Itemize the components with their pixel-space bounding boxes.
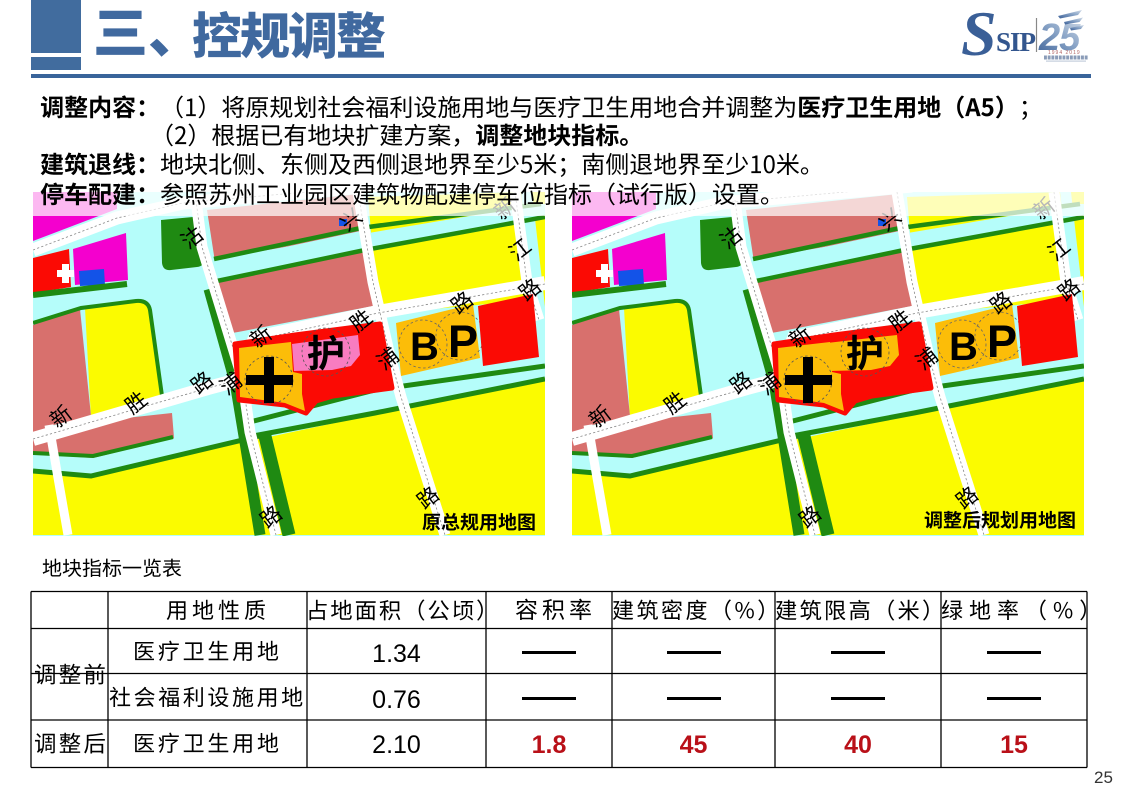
svg-text:P: P [448,316,478,367]
svg-text:B: B [410,325,439,369]
svg-text:SIP: SIP [996,27,1036,57]
svg-text:1994 2019: 1994 2019 [1048,50,1081,56]
svg-text:S: S [961,0,997,62]
svg-text:B: B [949,325,978,369]
svg-text:P: P [987,316,1017,367]
